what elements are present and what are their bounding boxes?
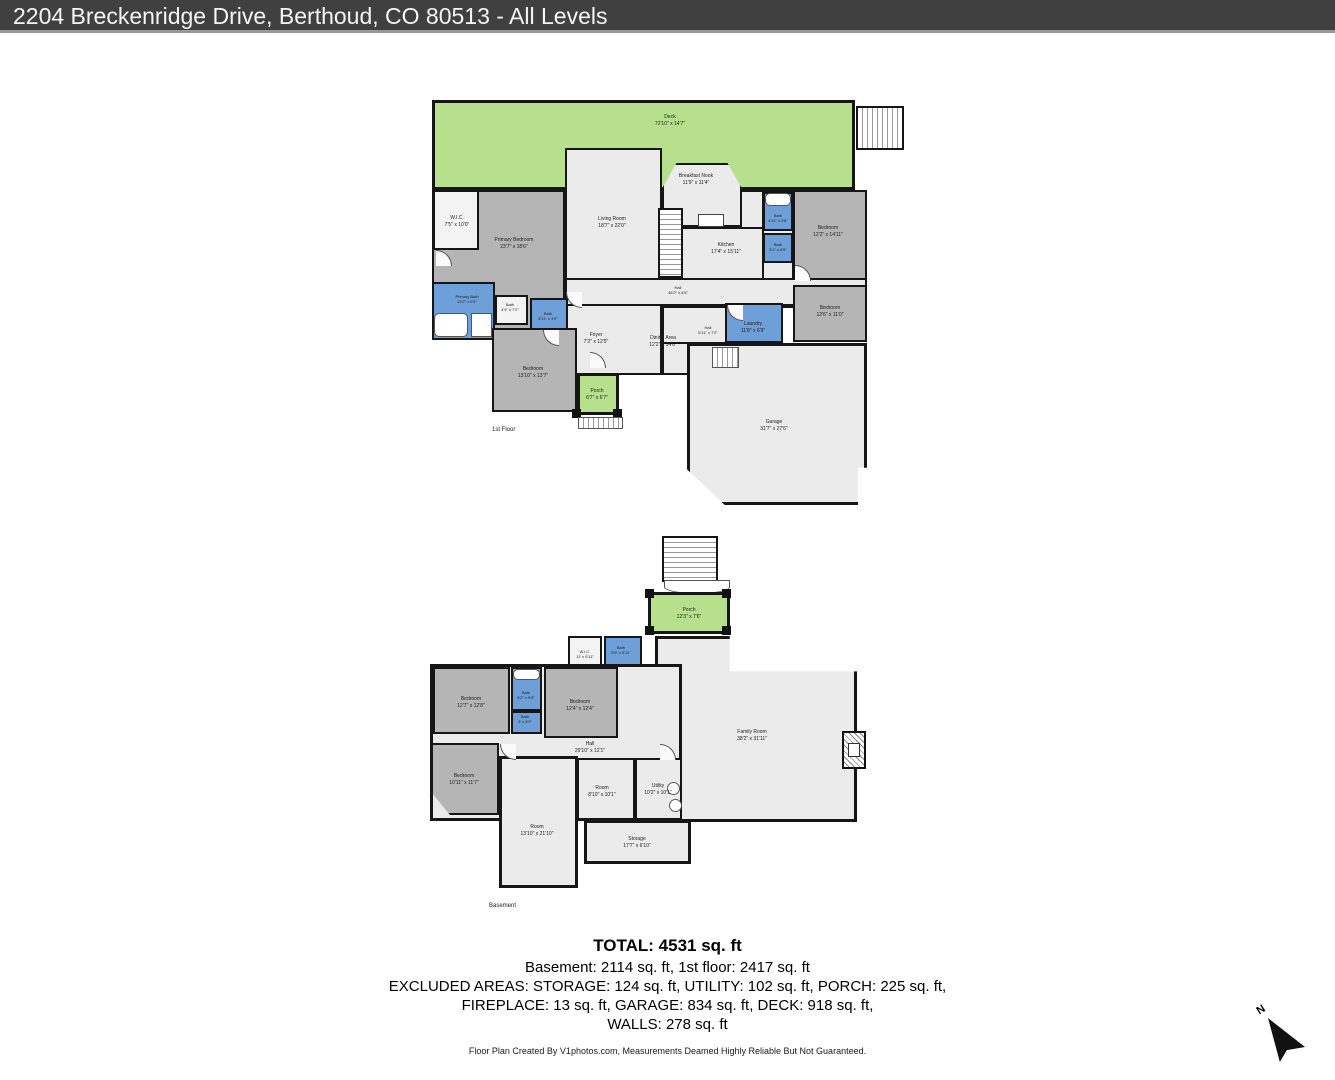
bathtub <box>513 669 540 680</box>
page-title: 2204 Breckenridge Drive, Berthoud, CO 80… <box>0 0 1335 33</box>
label-bath-basement-top: Bath5'9" x 5'11" <box>589 645 653 655</box>
label-bath-lower: Bath5'1" x 6'5" <box>746 242 810 252</box>
label-porch-first: Porch6'7" x 6'7" <box>552 388 642 401</box>
summary-total: TOTAL: 4531 sq. ft <box>0 936 1335 956</box>
label-deck: Deck72'10" x 14'7" <box>625 114 715 127</box>
label-dining-area: Dining Area12'2" x 14'6" <box>618 335 708 348</box>
shower <box>471 313 492 337</box>
label-porch-basement: Porch12'3" x 7'6" <box>644 607 734 620</box>
label-bath-mid2: Bath8'11" x 4'9" <box>516 311 580 321</box>
front-steps <box>578 417 623 429</box>
label-utility: Utility10'2" x 10'1" <box>613 783 703 796</box>
basement-top-stairs <box>662 536 718 582</box>
floor-plan-page: 2204 Breckenridge Drive, Berthoud, CO 80… <box>0 0 1335 1080</box>
porch-post <box>645 589 654 598</box>
label-bedroom-b2: Bedroom12'4" x 12'4" <box>535 699 625 712</box>
main-staircase <box>658 208 683 278</box>
label-primary-bedroom: Primary Bedroom23'7" x 18'6" <box>469 237 559 250</box>
label-bedroom-ne: Bedroom12'2" x 14'11" <box>783 225 873 238</box>
label-wic-first: W.I.C.7'5" x 10'0" <box>412 215 502 228</box>
label-hall-long: Hall46'2" x 4'6" <box>646 285 710 295</box>
water-heater <box>669 799 682 812</box>
label-hall-basement: Hall29'10" x 12'1" <box>545 741 635 754</box>
label-bedroom-b3: Bedroom10'11" x 11'7" <box>419 773 509 786</box>
summary-line: FIREPLACE: 13 sq. ft, GARAGE: 834 sq. ft… <box>0 996 1335 1015</box>
footer-credit: Floor Plan Created By V1photos.com, Meas… <box>0 1046 1335 1056</box>
room-basement-room-large <box>499 756 578 888</box>
basement-stairs-entry <box>712 347 739 368</box>
label-bath-b3: Bath3' x 4'9" <box>493 714 557 724</box>
kitchen-island <box>698 214 724 227</box>
porch-post <box>722 626 731 635</box>
label-bath-upper: Bath4'11" x 5'8" <box>746 213 810 223</box>
porch-post <box>722 589 731 598</box>
bathtub <box>765 193 791 206</box>
primary-bathtub <box>434 313 468 337</box>
label-garage: Garage31'7" x 27'6" <box>729 419 819 432</box>
summary-line: WALLS: 278 sq. ft <box>0 1015 1335 1034</box>
label-living-room: Living Room18'7" x 22'0" <box>567 216 657 229</box>
porch-post <box>645 626 654 635</box>
caption-basement: Basement <box>489 903 516 909</box>
label-family-room: Family Room38'2" x 31'11" <box>707 729 797 742</box>
deck-stairs <box>856 106 904 150</box>
area-summary: TOTAL: 4531 sq. ft Basement: 2114 sq. ft… <box>0 936 1335 1034</box>
label-bedroom-e: Bedroom12'6" x 11'0" <box>785 305 875 318</box>
label-bedroom-sw: Bedroom13'10" x 13'7" <box>488 366 578 379</box>
summary-line: EXCLUDED AREAS: STORAGE: 124 sq. ft, UTI… <box>0 977 1335 996</box>
label-storage: Storage17'7" x 6'10" <box>592 836 682 849</box>
summary-line: Basement: 2114 sq. ft, 1st floor: 2417 s… <box>0 958 1335 977</box>
label-room-large: Room13'10" x 21'10" <box>492 824 582 837</box>
fireplace-box <box>848 743 860 757</box>
label-breakfast-nook: Breakfast Nook11'9" x 11'4" <box>651 173 741 186</box>
caption-first-floor: 1st Floor <box>492 427 515 433</box>
fireplace <box>842 731 866 769</box>
label-hall-small: Hall5'11" x 7'2" <box>676 325 740 335</box>
